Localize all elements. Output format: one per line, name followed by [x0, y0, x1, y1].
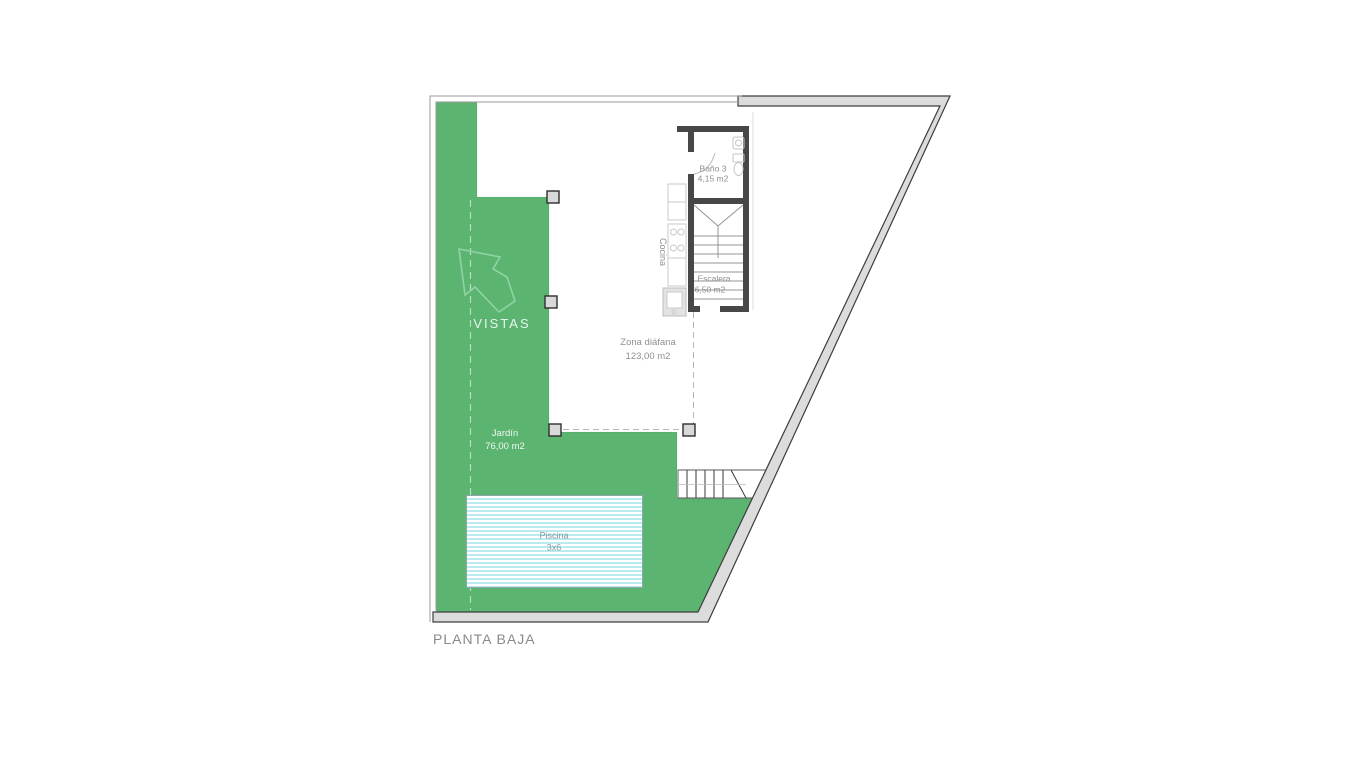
open-zone-label: Zona diáfana — [620, 337, 675, 349]
stairs-label: Escalera — [697, 274, 730, 285]
exterior-stairs — [678, 470, 766, 498]
floor-plan-canvas: VISTAS Jardín 76,00 m2 Zona diáfana 123,… — [0, 0, 1366, 768]
pool-size-label: 3x6 — [547, 542, 562, 553]
open-zone-area-label: 123,00 m2 — [626, 351, 671, 363]
kitchen-label: Cocina — [658, 238, 668, 266]
toilet-and-sink — [733, 137, 744, 176]
garden-label: Jardín — [492, 428, 518, 440]
plan-title: PLANTA BAJA — [433, 631, 536, 647]
pool-label: Piscina — [539, 530, 568, 541]
floor-plan-drawing — [0, 0, 1366, 768]
garden-area-label: 76,00 m2 — [485, 441, 525, 453]
vistas-label: VISTAS — [473, 316, 530, 332]
bathroom-area-label: 4,15 m2 — [698, 174, 729, 185]
stairs-area-label: 6,50 m2 — [695, 285, 726, 296]
